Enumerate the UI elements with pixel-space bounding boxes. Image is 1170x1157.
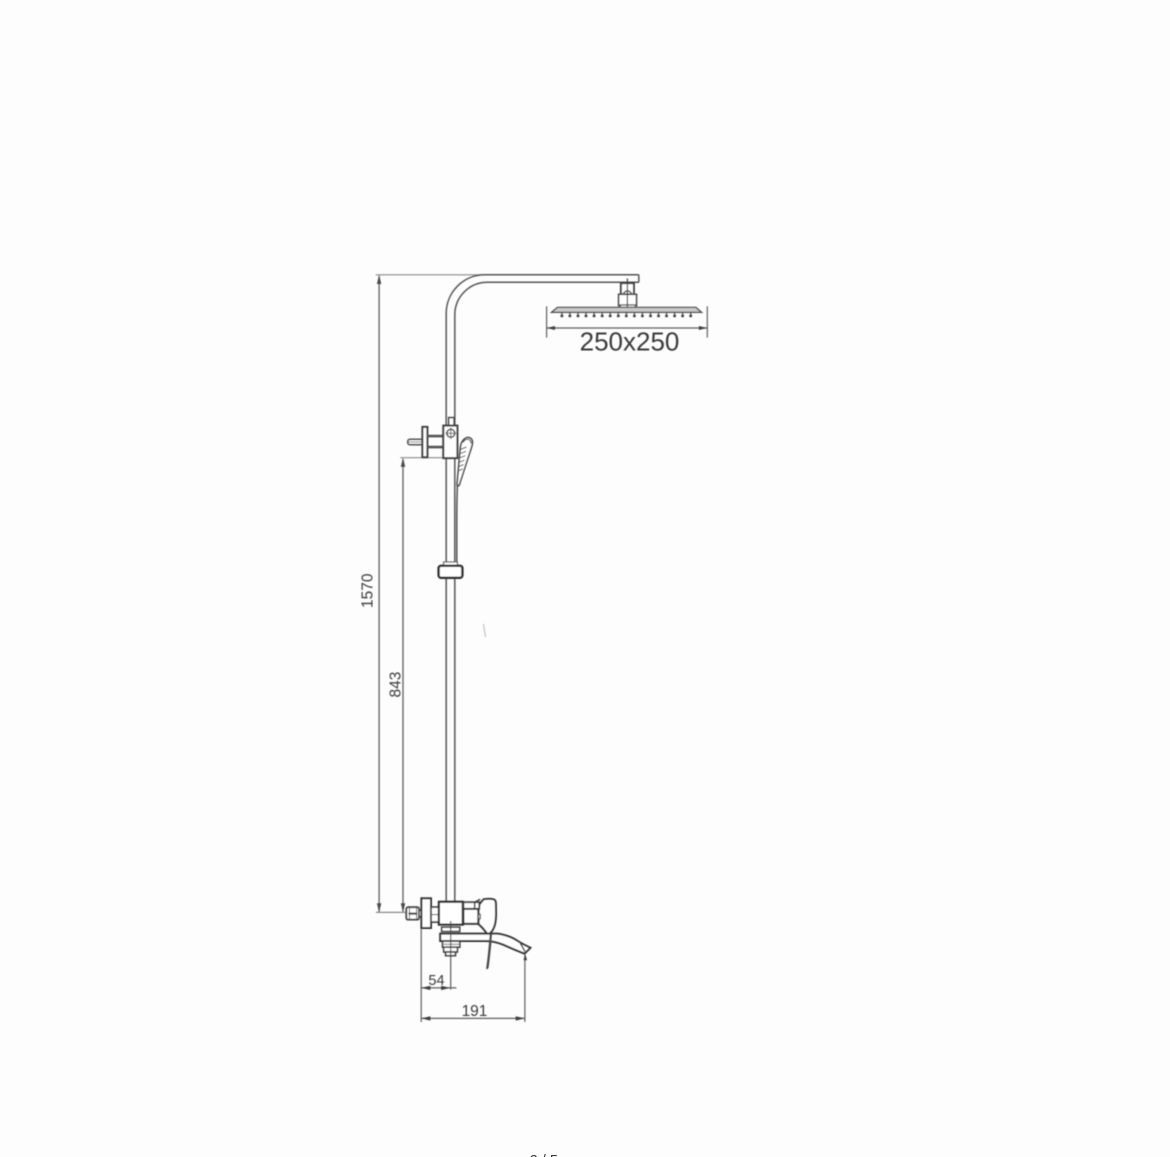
- svg-text:2 / 5: 2 / 5: [530, 1153, 558, 1157]
- svg-text:54: 54: [428, 973, 444, 989]
- svg-text:1570: 1570: [360, 573, 377, 608]
- svg-text:843: 843: [388, 672, 405, 698]
- svg-text:191: 191: [462, 1003, 488, 1020]
- svg-text:250x250: 250x250: [580, 327, 680, 357]
